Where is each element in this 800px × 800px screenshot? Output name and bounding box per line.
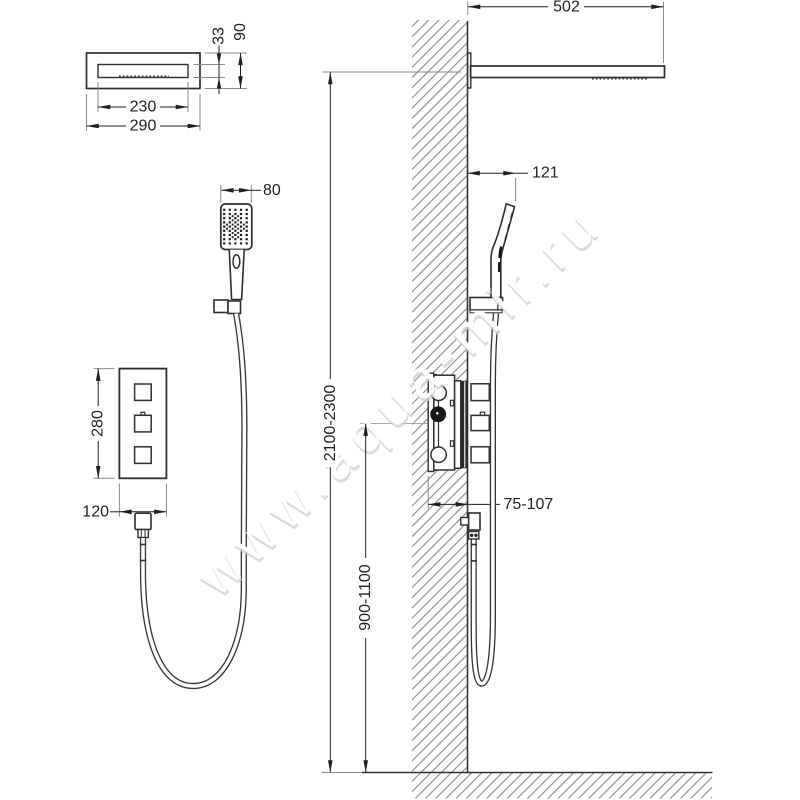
- svg-text:121: 121: [532, 165, 559, 182]
- svg-text:502: 502: [553, 0, 580, 16]
- svg-text:120: 120: [82, 503, 109, 520]
- svg-text:230: 230: [130, 99, 157, 116]
- svg-text:80: 80: [263, 182, 281, 199]
- svg-text:900-1100: 900-1100: [357, 564, 374, 631]
- svg-text:90: 90: [232, 23, 249, 41]
- svg-text:290: 290: [130, 118, 157, 135]
- svg-text:280: 280: [90, 410, 107, 437]
- svg-text:75-107: 75-107: [504, 496, 554, 513]
- svg-text:33: 33: [211, 27, 228, 45]
- svg-text:2100-2300: 2100-2300: [322, 385, 339, 462]
